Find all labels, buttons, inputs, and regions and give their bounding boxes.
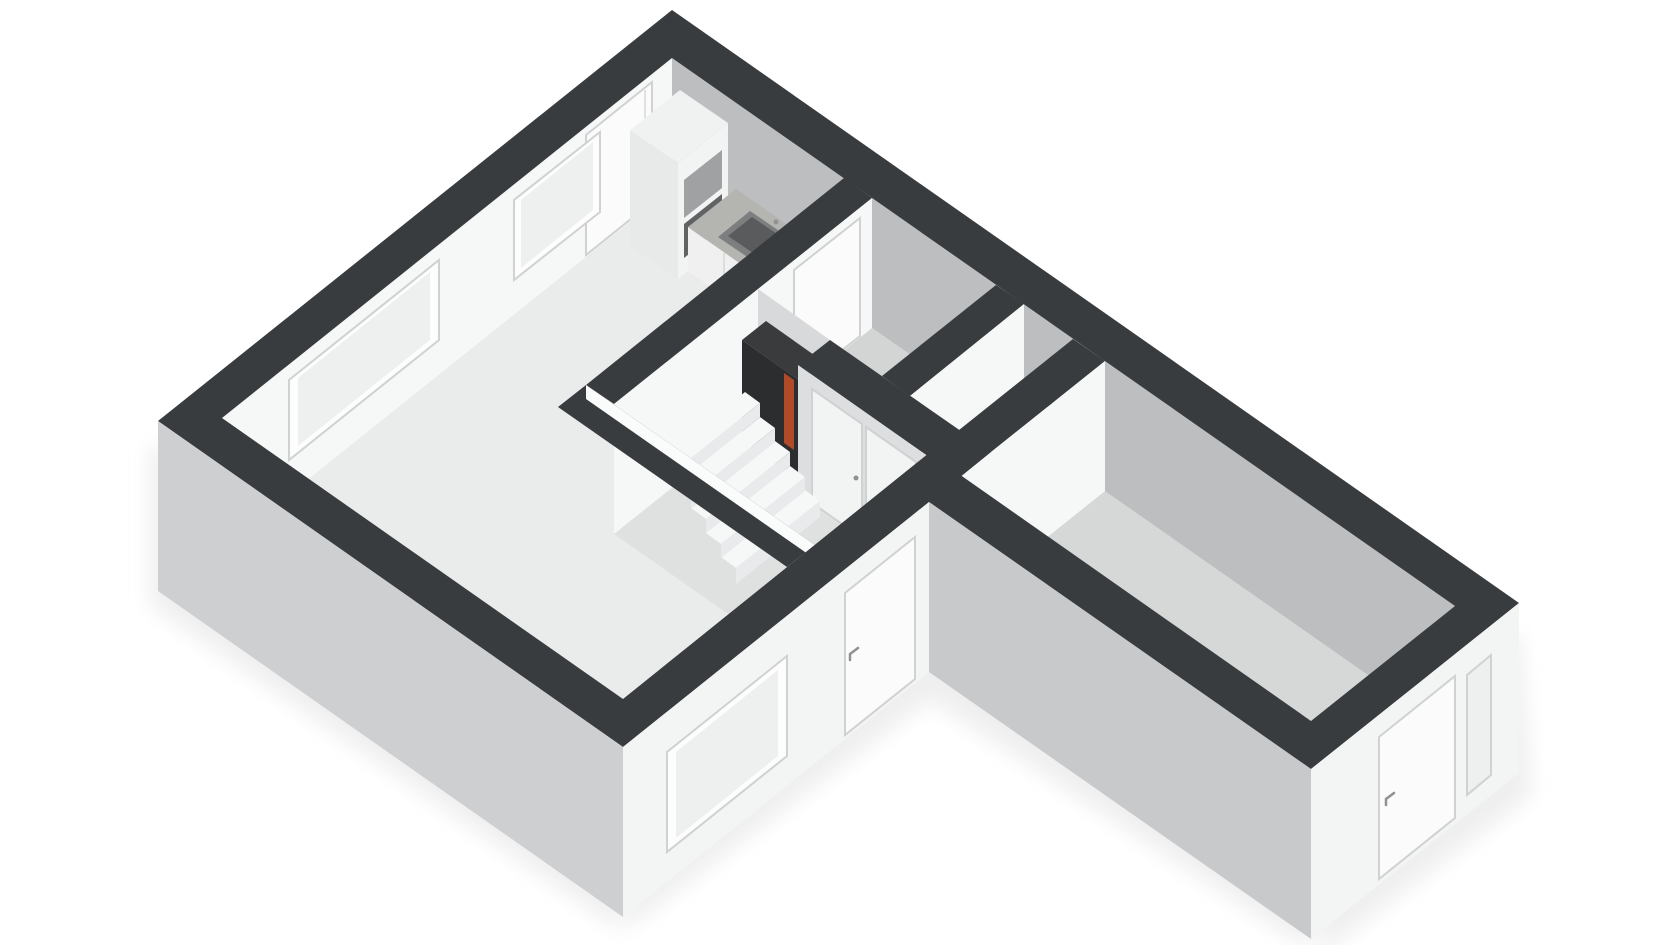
wing-sidelight-glass [1467, 655, 1491, 795]
floorplan-3d-canvas[interactable] [0, 0, 1680, 945]
closet-door-handle-icon [854, 476, 859, 481]
floorplan-viewer [0, 0, 1680, 945]
faucet-icon [774, 220, 779, 225]
heater-accent-stripe [784, 373, 794, 450]
